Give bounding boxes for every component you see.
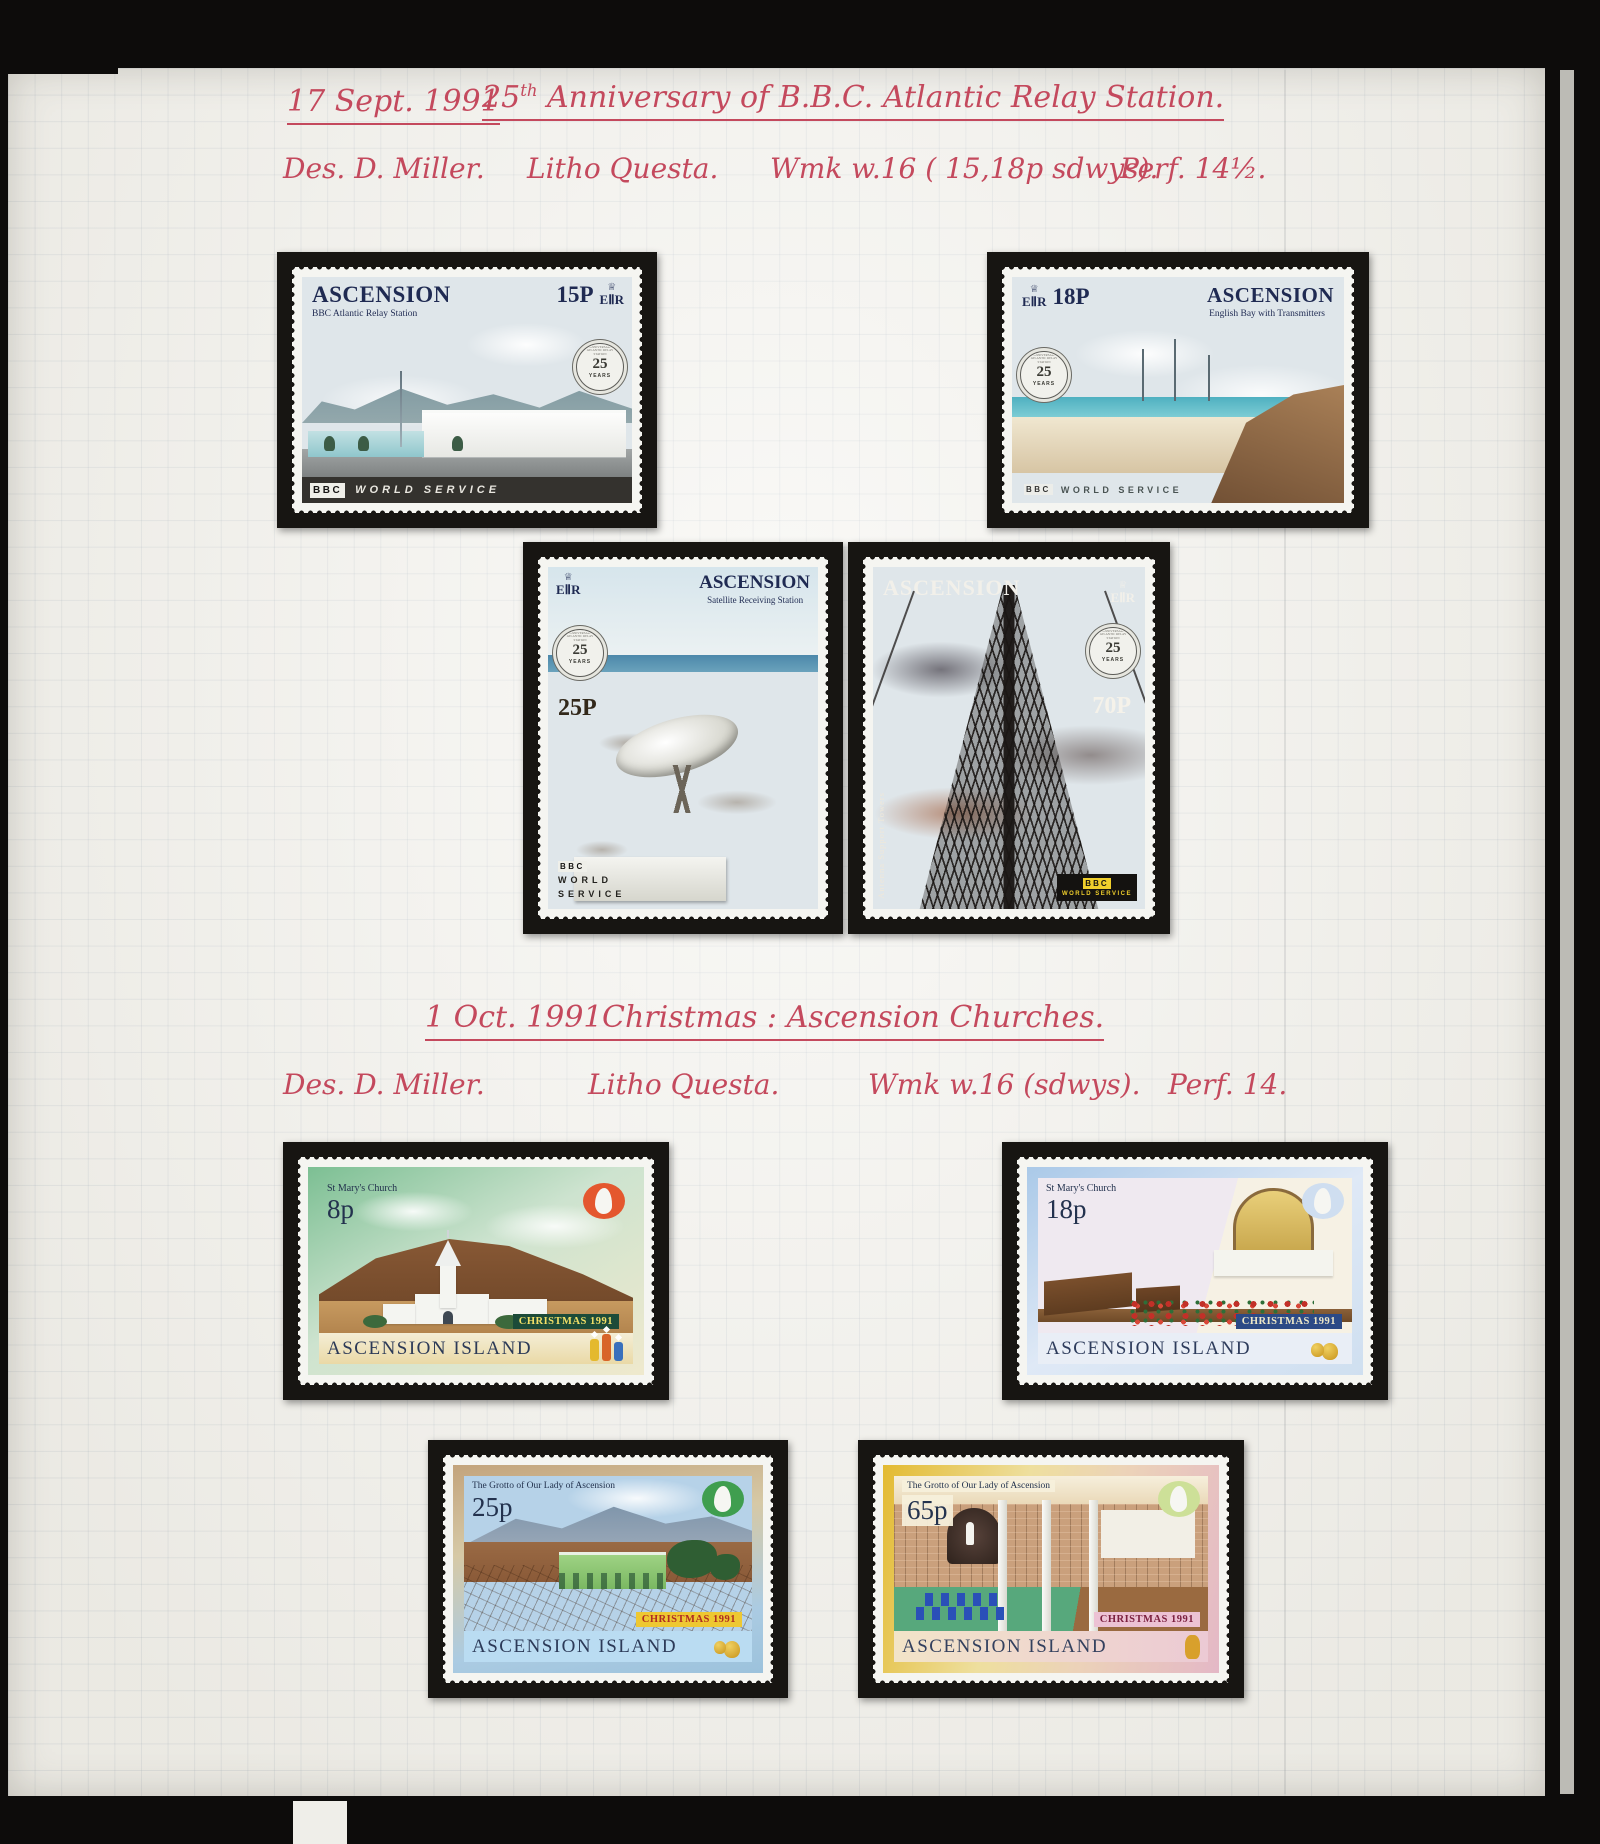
transmitter-mast bbox=[1208, 355, 1210, 401]
christmas-banner: CHRISTMAS 1991 bbox=[1094, 1612, 1200, 1627]
stamp-caption: St Mary's Church bbox=[1046, 1183, 1116, 1194]
denomination: 18p bbox=[1046, 1194, 1087, 1225]
stamp-photo: St Mary's Church 8p CHRISTMAS 1991 ASCEN… bbox=[319, 1178, 633, 1364]
anniversary-medallion: 25th ANNIVERSARY OF ATLANTIC RELAY STATI… bbox=[1020, 351, 1068, 399]
perforation-right bbox=[638, 263, 646, 517]
heading-xmas-designer: Des. D. Miller. bbox=[283, 1068, 485, 1101]
bbc-logo: BBC bbox=[1024, 484, 1053, 495]
medallion-years: 25 bbox=[593, 356, 608, 373]
denomination: 25P bbox=[558, 695, 597, 722]
stamp-design: The Grotto of Our Lady of Ascension 65p … bbox=[883, 1465, 1219, 1673]
perforation-right bbox=[824, 553, 832, 923]
stamp-header-right: ASCENSION English Bay with Transmitters bbox=[1207, 285, 1334, 320]
stamp-bbc-25p: ♕EⅡR ASCENSION Satellite Receiving Stati… bbox=[523, 542, 843, 934]
perforation-left bbox=[439, 1451, 447, 1687]
royal-cipher-block: ♕EⅡR bbox=[600, 283, 624, 308]
country-label: ASCENSION bbox=[699, 573, 810, 592]
christmas-banner: CHRISTMAS 1991 bbox=[513, 1314, 619, 1329]
perforation-left bbox=[288, 263, 296, 517]
perforation-left bbox=[998, 263, 1006, 517]
country-label: ASCENSION bbox=[312, 283, 451, 306]
album-page-edge-sliver bbox=[1560, 70, 1574, 1794]
perforation-right bbox=[650, 1153, 658, 1389]
perforation-left bbox=[859, 553, 867, 923]
country-banner: ASCENSION ISLAND bbox=[464, 1631, 752, 1662]
world-label: WORLD bbox=[558, 874, 612, 887]
shrub bbox=[363, 1315, 387, 1328]
queen-cameo-icon bbox=[1302, 1183, 1344, 1219]
stamp-frame: ♕EⅡR 18P ASCENSION English Bay with Tran… bbox=[1002, 267, 1354, 513]
perforation-top bbox=[534, 553, 832, 561]
heading-xmas-perforation: Perf. 14. bbox=[1168, 1068, 1287, 1101]
heading-xmas-watermark: Wmk w.16 (sdwys). bbox=[868, 1068, 1140, 1101]
stamp-caption: English Bay with Transmitters bbox=[1207, 309, 1325, 320]
perforation-top bbox=[869, 1451, 1233, 1459]
perforation-bottom bbox=[859, 915, 1159, 923]
stamp-design: The Grotto of Our Lady of Ascension 25p … bbox=[453, 1465, 763, 1673]
crown-icon: ♕ bbox=[607, 283, 616, 292]
perforation-bottom bbox=[288, 509, 646, 517]
bbc-world-service-box: BBC WORLD SERVICE bbox=[1057, 874, 1137, 901]
perforation-right bbox=[1151, 553, 1159, 923]
stamp-frame: The Grotto of Our Lady of Ascension 25p … bbox=[443, 1455, 773, 1683]
queen-cameo-icon bbox=[702, 1481, 744, 1517]
album-page-photo: 17 Sept. 1991 25th Anniversary of B.B.C.… bbox=[0, 0, 1600, 1844]
heading-xmas-date: 1 Oct. 1991 bbox=[425, 1000, 603, 1041]
medallion-years: 25 bbox=[573, 642, 588, 659]
stamp-caption: Antenna Support Towers bbox=[876, 792, 886, 899]
perforation-left bbox=[1013, 1153, 1021, 1389]
heading-bbc-perforation: Perf. 14½. bbox=[1120, 152, 1266, 185]
stamp-frame: ♕EⅡR ASCENSION Satellite Receiving Stati… bbox=[538, 557, 828, 919]
stamp-caption: Satellite Receiving Station bbox=[699, 595, 803, 606]
perforation-top bbox=[998, 263, 1358, 271]
medallion-years-label: YEARS bbox=[1102, 657, 1124, 663]
perforation-right bbox=[1225, 1451, 1233, 1687]
royal-cipher-block: ♕EⅡR bbox=[556, 573, 580, 598]
crown-icon: ♕ bbox=[1118, 581, 1127, 590]
church-tower bbox=[440, 1266, 456, 1308]
royal-cipher: EⅡR bbox=[600, 292, 624, 308]
country-banner: ASCENSION ISLAND bbox=[319, 1333, 633, 1364]
denomination: 70P bbox=[1092, 693, 1131, 720]
perforation-right bbox=[1350, 263, 1358, 517]
stamp-header-right: 15P ♕EⅡR bbox=[556, 283, 624, 308]
grotto-niche bbox=[947, 1508, 1000, 1564]
anniversary-medallion: 25th ANNIVERSARY OF ATLANTIC RELAY STATI… bbox=[556, 629, 604, 677]
medallion-years-label: YEARS bbox=[569, 659, 591, 665]
perforation-top bbox=[859, 553, 1159, 561]
perforation-left bbox=[534, 553, 542, 923]
perforation-top bbox=[288, 263, 646, 271]
stamp-caption: The Grotto of Our Lady of Ascension bbox=[902, 1480, 1055, 1492]
anniversary-medallion: 25th ANNIVERSARY OF ATLANTIC RELAY STATI… bbox=[1089, 627, 1137, 675]
transmitter-mast bbox=[1174, 339, 1176, 401]
column bbox=[1042, 1500, 1051, 1631]
stamp-design: St Mary's Church 18p CHRISTMAS 1991 ASCE… bbox=[1027, 1167, 1363, 1375]
stamp-xmas-65p: The Grotto of Our Lady of Ascension 65p … bbox=[858, 1440, 1244, 1698]
country-banner: ASCENSION ISLAND bbox=[894, 1631, 1208, 1662]
stamp-design: ♕EⅡR ASCENSION Satellite Receiving Stati… bbox=[548, 567, 818, 909]
heading-bbc-watermark: Wmk w.16 ( 15,18p sdwys). bbox=[770, 152, 1158, 185]
bell-icon bbox=[714, 1641, 726, 1654]
stamp-photo: St Mary's Church 18p CHRISTMAS 1991 ASCE… bbox=[1038, 1178, 1352, 1364]
stamp-xmas-18p: St Mary's Church 18p CHRISTMAS 1991 ASCE… bbox=[1002, 1142, 1388, 1400]
page-bottom-notch bbox=[293, 1801, 347, 1844]
denomination: 25p bbox=[472, 1492, 513, 1523]
christmas-banner: CHRISTMAS 1991 bbox=[636, 1612, 742, 1627]
stamp-design: ASCENSION ♕EⅡR 25th ANNIVERSARY OF ATLAN… bbox=[873, 567, 1145, 909]
stamp-design: St Mary's Church 8p CHRISTMAS 1991 ASCEN… bbox=[308, 1167, 644, 1375]
blue-chairs-row bbox=[925, 1593, 1000, 1606]
grotto-building bbox=[559, 1552, 666, 1589]
heading-bbc-title-num: 25 bbox=[482, 80, 520, 115]
church-door bbox=[443, 1311, 453, 1324]
stamp-header: ASCENSION BBC Atlantic Relay Station 15P… bbox=[312, 283, 624, 319]
queen-cameo-icon bbox=[1158, 1481, 1200, 1517]
stamp-frame: ASCENSION BBC Atlantic Relay Station 15P… bbox=[292, 267, 642, 513]
stamp-frame: The Grotto of Our Lady of Ascension 65p … bbox=[873, 1455, 1229, 1683]
stamp-bbc-18p: ♕EⅡR 18P ASCENSION English Bay with Tran… bbox=[987, 252, 1369, 528]
antenna-mast bbox=[400, 371, 402, 447]
royal-cipher-block: ♕EⅡR bbox=[1022, 285, 1046, 310]
heading-bbc-date: 17 Sept. 1991 bbox=[287, 84, 500, 125]
country-label: ASCENSION bbox=[883, 575, 1020, 601]
heading-bbc-printer: Litho Questa. bbox=[527, 152, 718, 185]
stamp-xmas-25p: The Grotto of Our Lady of Ascension 25p … bbox=[428, 1440, 788, 1698]
stamp-header-left: ♕EⅡR 18P bbox=[1022, 285, 1090, 310]
heading-bbc-title-rest: Anniversary of B.B.C. Atlantic Relay Sta… bbox=[537, 80, 1224, 115]
heading-bbc-title-sup: th bbox=[520, 81, 537, 100]
service-label: SERVICE bbox=[558, 888, 625, 901]
heading-xmas-title: Christmas : Ascension Churches. bbox=[602, 1000, 1104, 1041]
royal-cipher-block: ♕EⅡR bbox=[1111, 575, 1135, 606]
bbc-logo: BBC bbox=[558, 861, 587, 872]
royal-cipher: EⅡR bbox=[1111, 590, 1135, 606]
country-banner: ASCENSION ISLAND bbox=[1038, 1333, 1352, 1364]
stamp-design: ♕EⅡR 18P ASCENSION English Bay with Tran… bbox=[1012, 277, 1344, 503]
crown-icon: ♕ bbox=[1030, 285, 1039, 294]
stamp-frame: St Mary's Church 8p CHRISTMAS 1991 ASCEN… bbox=[298, 1157, 654, 1385]
stamp-header: ♕EⅡR ASCENSION Satellite Receiving Stati… bbox=[556, 573, 810, 606]
dish-support-struts bbox=[652, 765, 712, 813]
bell-icon bbox=[1311, 1343, 1324, 1357]
christmas-banner: CHRISTMAS 1991 bbox=[1236, 1314, 1342, 1329]
bbc-world-service-band: BBC WORLD SERVICE bbox=[302, 477, 632, 503]
bell-icon bbox=[724, 1641, 740, 1658]
perforation-right bbox=[1369, 1153, 1377, 1389]
anniversary-medallion: 25th ANNIVERSARY OF ATLANTIC RELAY STATI… bbox=[576, 343, 624, 391]
statue-of-mary bbox=[966, 1522, 974, 1545]
candle-icon bbox=[602, 1334, 611, 1361]
world-service-label: WORLD SERVICE bbox=[1062, 891, 1132, 897]
denomination: 65p bbox=[902, 1495, 953, 1526]
stamp-frame: St Mary's Church 18p CHRISTMAS 1991 ASCE… bbox=[1017, 1157, 1373, 1385]
stamp-bbc-15p: ASCENSION BBC Atlantic Relay Station 15P… bbox=[277, 252, 657, 528]
transmitter-mast bbox=[1142, 349, 1144, 401]
stamp-caption: The Grotto of Our Lady of Ascension bbox=[472, 1481, 615, 1491]
perforation-top bbox=[439, 1451, 777, 1459]
stamp-bbc-70p: ASCENSION ♕EⅡR 25th ANNIVERSARY OF ATLAN… bbox=[848, 542, 1170, 934]
palm-tree-icon bbox=[358, 436, 369, 451]
stamp-frame: ASCENSION ♕EⅡR 25th ANNIVERSARY OF ATLAN… bbox=[863, 557, 1155, 919]
heading-xmas-printer: Litho Questa. bbox=[588, 1068, 779, 1101]
perforation-bottom bbox=[1013, 1381, 1377, 1389]
palm-tree-icon bbox=[324, 436, 335, 451]
perforation-bottom bbox=[439, 1679, 777, 1687]
royal-cipher: EⅡR bbox=[556, 582, 580, 598]
country-label: ASCENSION bbox=[1207, 285, 1334, 306]
stamp-xmas-8p: St Mary's Church 8p CHRISTMAS 1991 ASCEN… bbox=[283, 1142, 669, 1400]
photo-edge-top bbox=[0, 0, 1600, 68]
stamp-photo: The Grotto of Our Lady of Ascension 65p … bbox=[894, 1476, 1208, 1662]
perforation-left bbox=[869, 1451, 877, 1687]
candle-icon bbox=[614, 1342, 623, 1361]
world-service-label: WORLD SERVICE bbox=[1061, 485, 1182, 495]
queen-cameo-icon bbox=[583, 1183, 625, 1219]
perforation-top bbox=[294, 1153, 658, 1161]
perforation-bottom bbox=[534, 915, 832, 923]
stamp-header: ♕EⅡR 18P ASCENSION English Bay with Tran… bbox=[1022, 285, 1334, 320]
medallion-years-label: YEARS bbox=[1033, 381, 1055, 387]
world-service-label: WORLD SERVICE bbox=[355, 484, 500, 496]
crown-icon: ♕ bbox=[564, 573, 573, 582]
stamp-header-right: ASCENSION Satellite Receiving Station bbox=[699, 573, 810, 606]
denomination: 8p bbox=[327, 1194, 354, 1225]
altar-wall bbox=[1101, 1510, 1195, 1558]
altar bbox=[1214, 1250, 1333, 1276]
bbc-logo: BBC bbox=[310, 483, 345, 498]
bbc-logo: BBC bbox=[1083, 878, 1110, 889]
cross-icon bbox=[447, 1230, 449, 1238]
heading-bbc-designer: Des. D. Miller. bbox=[283, 152, 485, 185]
denomination: 18P bbox=[1052, 285, 1089, 308]
royal-cipher: EⅡR bbox=[1022, 294, 1046, 310]
candle-icon bbox=[590, 1339, 599, 1361]
denomination: 15P bbox=[556, 283, 593, 306]
perforation-bottom bbox=[294, 1381, 658, 1389]
palm-tree-icon bbox=[452, 436, 463, 451]
church-wing bbox=[383, 1304, 415, 1324]
stamp-design: ASCENSION BBC Atlantic Relay Station 15P… bbox=[302, 277, 632, 503]
heading-bbc-title: 25th Anniversary of B.B.C. Atlantic Rela… bbox=[482, 80, 1224, 121]
gold-figure-icon bbox=[1185, 1635, 1200, 1659]
blue-chairs-row bbox=[916, 1607, 1010, 1620]
medallion-years: 25 bbox=[1037, 364, 1052, 381]
perforation-bottom bbox=[869, 1679, 1233, 1687]
stamp-caption: St Mary's Church bbox=[327, 1183, 397, 1194]
stamp-header-left: ASCENSION BBC Atlantic Relay Station bbox=[312, 283, 451, 319]
bell-icon bbox=[1322, 1343, 1338, 1360]
medallion-years: 25 bbox=[1106, 640, 1121, 657]
perforation-right bbox=[769, 1451, 777, 1687]
photo-edge-bottom bbox=[0, 1796, 1600, 1844]
photo-edge-left bbox=[0, 0, 8, 1844]
stamp-caption: BBC Atlantic Relay Station bbox=[312, 309, 451, 319]
perforation-bottom bbox=[998, 509, 1358, 517]
perforation-top bbox=[1013, 1153, 1377, 1161]
bbc-world-service-overlay: BBC WORLD SERVICE bbox=[1024, 484, 1182, 495]
stamp-photo: The Grotto of Our Lady of Ascension 25p … bbox=[464, 1476, 752, 1662]
perforation-left bbox=[294, 1153, 302, 1389]
medallion-years-label: YEARS bbox=[589, 373, 611, 379]
bbc-world-service-overlay: BBC WORLD SERVICE bbox=[558, 861, 625, 901]
